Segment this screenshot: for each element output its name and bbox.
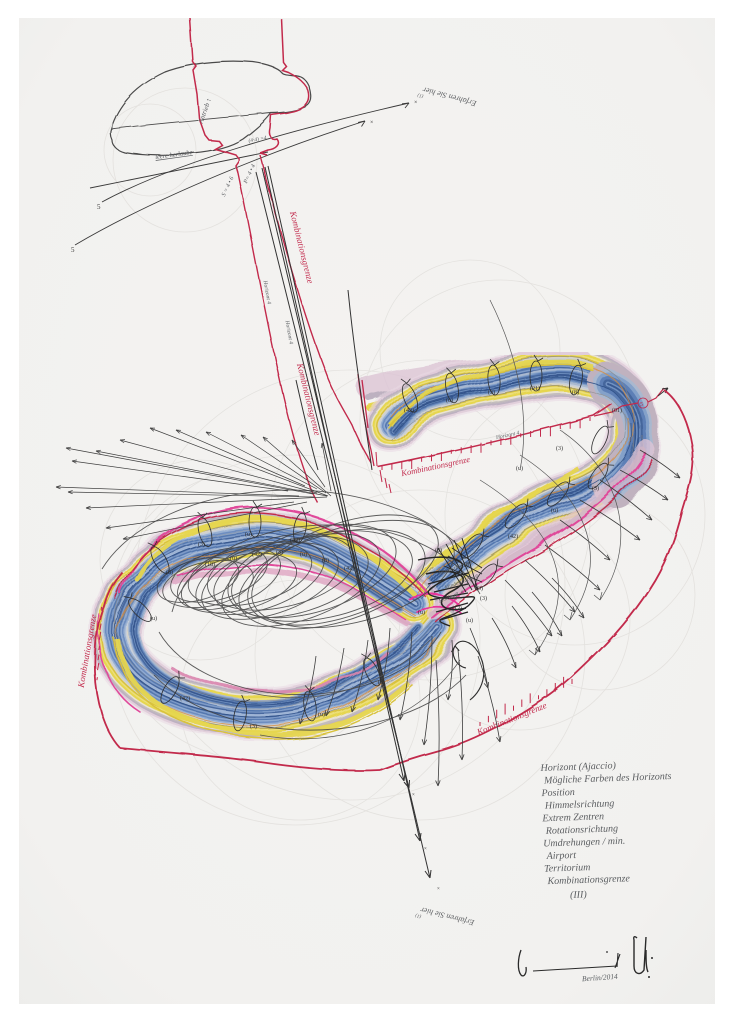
svg-text:(u): (u) xyxy=(300,551,307,558)
svg-text:×: × xyxy=(370,120,373,126)
svg-text:(III): (III) xyxy=(570,889,588,901)
svg-text:(3): (3) xyxy=(592,485,599,492)
svg-text:Position: Position xyxy=(540,787,575,799)
svg-text:(42): (42) xyxy=(180,695,190,702)
svg-text:×: × xyxy=(412,793,415,798)
svg-text:(8): (8) xyxy=(322,557,329,564)
svg-text:(42): (42) xyxy=(290,537,300,544)
svg-text:(42): (42) xyxy=(404,407,414,414)
svg-text:(3): (3) xyxy=(480,595,487,602)
svg-text:(18): (18) xyxy=(205,561,215,568)
svg-text:×: × xyxy=(437,887,440,892)
svg-text:(u): (u) xyxy=(516,465,523,472)
svg-text:×: × xyxy=(424,847,427,852)
svg-text:5: 5 xyxy=(640,402,643,408)
svg-text:(3): (3) xyxy=(276,549,283,556)
svg-text:(8): (8) xyxy=(378,679,385,686)
svg-text:(8): (8) xyxy=(572,389,579,396)
svg-text:(u): (u) xyxy=(466,617,473,624)
svg-text:(u): (u) xyxy=(551,507,558,514)
svg-text:5: 5 xyxy=(71,246,75,254)
svg-text:(u): (u) xyxy=(245,531,252,538)
svg-text:(u): (u) xyxy=(418,609,425,616)
svg-text:Airport: Airport xyxy=(545,850,576,862)
svg-text:5: 5 xyxy=(97,203,101,211)
svg-text:Extrem Zentren: Extrem Zentren xyxy=(541,811,604,824)
svg-text:(01): (01) xyxy=(612,407,622,414)
svg-text:(3): (3) xyxy=(488,389,495,396)
svg-text:(3): (3) xyxy=(198,541,205,548)
svg-text:(3): (3) xyxy=(250,723,257,730)
svg-text:(u): (u) xyxy=(446,397,453,404)
svg-text:(3): (3) xyxy=(556,445,563,452)
svg-text:(8): (8) xyxy=(166,569,173,576)
svg-text:(42): (42) xyxy=(508,533,518,540)
svg-text:(42): (42) xyxy=(252,551,262,558)
svg-text:(21): (21) xyxy=(530,385,540,392)
svg-text:(42): (42) xyxy=(344,565,354,572)
svg-text:Territorium: Territorium xyxy=(544,862,591,875)
svg-text:(u): (u) xyxy=(318,711,325,718)
svg-text:(u): (u) xyxy=(150,615,157,622)
svg-text:(u): (u) xyxy=(230,555,237,562)
svg-text:×: × xyxy=(414,100,417,106)
